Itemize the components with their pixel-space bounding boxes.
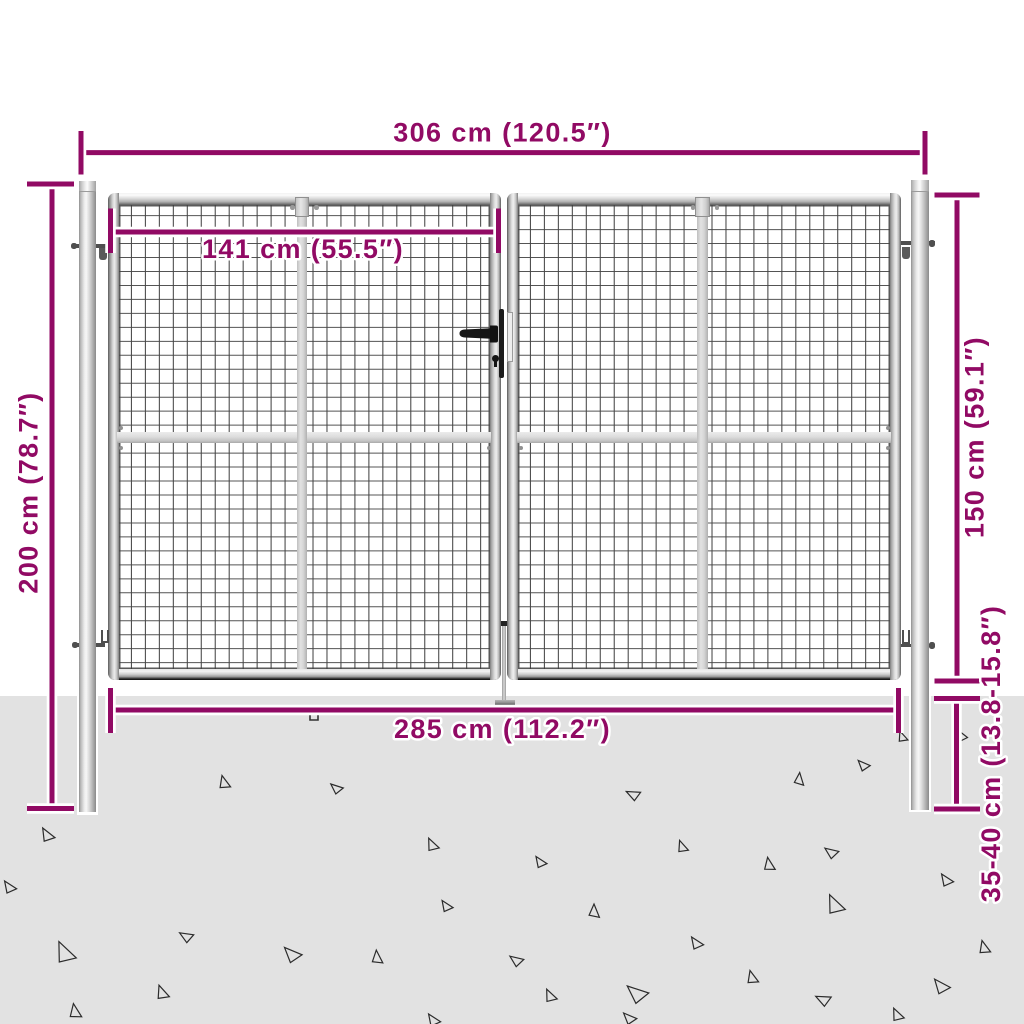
svg-text:285 cm (112.2″): 285 cm (112.2″): [394, 714, 611, 744]
svg-text:200 cm (78.7″): 200 cm (78.7″): [14, 391, 44, 593]
svg-text:35-40 cm (13.8-15.8″): 35-40 cm (13.8-15.8″): [976, 605, 1006, 903]
svg-text:141 cm (55.5″): 141 cm (55.5″): [202, 234, 404, 264]
svg-text:150 cm (59.1″): 150 cm (59.1″): [960, 336, 990, 538]
svg-text:306 cm (120.5″): 306 cm (120.5″): [393, 118, 612, 148]
